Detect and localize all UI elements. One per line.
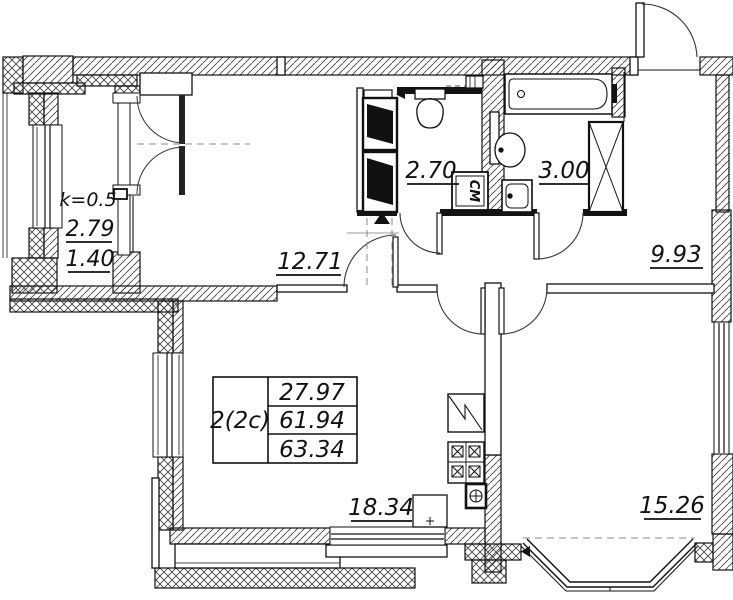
door-arc (344, 235, 396, 287)
window-sill (326, 545, 447, 557)
room-area-label-living: 15.26 (639, 493, 705, 519)
door-arc (137, 147, 184, 194)
living-area-value: 27.97 (279, 380, 345, 406)
door-jamb (113, 93, 140, 103)
door-leaf (393, 237, 398, 287)
wall (158, 457, 173, 530)
vent-duct-symbol (466, 484, 486, 508)
door-arc (400, 213, 440, 253)
wall (14, 83, 85, 94)
door-leaf (534, 213, 539, 259)
toilet-symbol (415, 89, 445, 128)
wall (44, 93, 58, 125)
total-area-value: 61.94 (279, 408, 345, 434)
washing-machine-symbol: СМ (452, 172, 488, 210)
total-area-reduced-value: 63.34 (279, 437, 345, 463)
partition (547, 284, 714, 293)
wall (77, 75, 137, 86)
bay-window (521, 539, 698, 591)
fridge-symbol (448, 394, 484, 432)
wall-joint (277, 57, 285, 75)
wall (716, 75, 729, 212)
door-leaf (499, 288, 504, 334)
wall (712, 210, 731, 322)
room-area-label-bath: 3.00 (538, 158, 589, 184)
door-arc (137, 96, 184, 143)
wall (29, 93, 44, 125)
washbasin-symbol (490, 112, 525, 167)
room-area-label-entry: 9.93 (650, 242, 701, 268)
wall (700, 57, 733, 75)
wall (712, 454, 733, 534)
vent-box-symbol (466, 76, 483, 88)
window (153, 353, 183, 457)
wall-lintel (140, 73, 192, 95)
partition (397, 285, 437, 292)
room-area-label-wc: 2.70 (405, 158, 456, 184)
door-leaf (437, 213, 442, 254)
door-leaf (481, 288, 485, 334)
balcony-door-leaf (179, 95, 185, 144)
wall (713, 534, 733, 570)
door-arc (537, 213, 583, 259)
wall (173, 457, 183, 530)
window (714, 322, 729, 454)
door-arc (437, 288, 483, 334)
wall (23, 56, 73, 83)
wall (155, 568, 415, 588)
balcony-area-label: 2.79 (66, 217, 115, 242)
door-jamb (630, 57, 638, 75)
partitions (140, 57, 714, 568)
balcony-door-leaf (179, 146, 185, 195)
partition (277, 285, 347, 292)
balcony-door-frame (118, 95, 130, 255)
door-arc (642, 4, 697, 57)
floor-plan-drawing: СМ (0, 0, 733, 600)
entrance-door-leaf (636, 3, 644, 57)
wardrobe-symbol (363, 90, 397, 212)
wall (170, 528, 330, 544)
wall (158, 301, 173, 353)
door-arc (502, 289, 547, 334)
balcony-coef-label: k=0.5 (59, 189, 116, 211)
wall (10, 299, 178, 312)
bathtub-symbol (505, 74, 612, 114)
kitchen-sink-symbol (413, 495, 447, 527)
room-area-label-kitchen: 18.34 (348, 495, 414, 521)
stove-symbol (448, 442, 484, 483)
washing-machine-label: СМ (466, 180, 481, 203)
wall (73, 57, 637, 75)
room-area-label-hall: 12.71 (277, 249, 343, 275)
sink-symbol (502, 180, 532, 212)
unit-label: 2(2c) (210, 408, 270, 434)
wall (173, 301, 183, 353)
window (330, 527, 445, 545)
wall (485, 455, 501, 572)
ledge-edge (152, 478, 159, 568)
balcony-reduced-area-label: 1.40 (66, 247, 115, 272)
wall (29, 228, 44, 258)
vent-shaft-symbol (589, 122, 623, 212)
wall (44, 228, 58, 258)
floor-plan-page: СМ (0, 0, 733, 600)
wall (445, 528, 485, 544)
ledge (175, 544, 340, 568)
